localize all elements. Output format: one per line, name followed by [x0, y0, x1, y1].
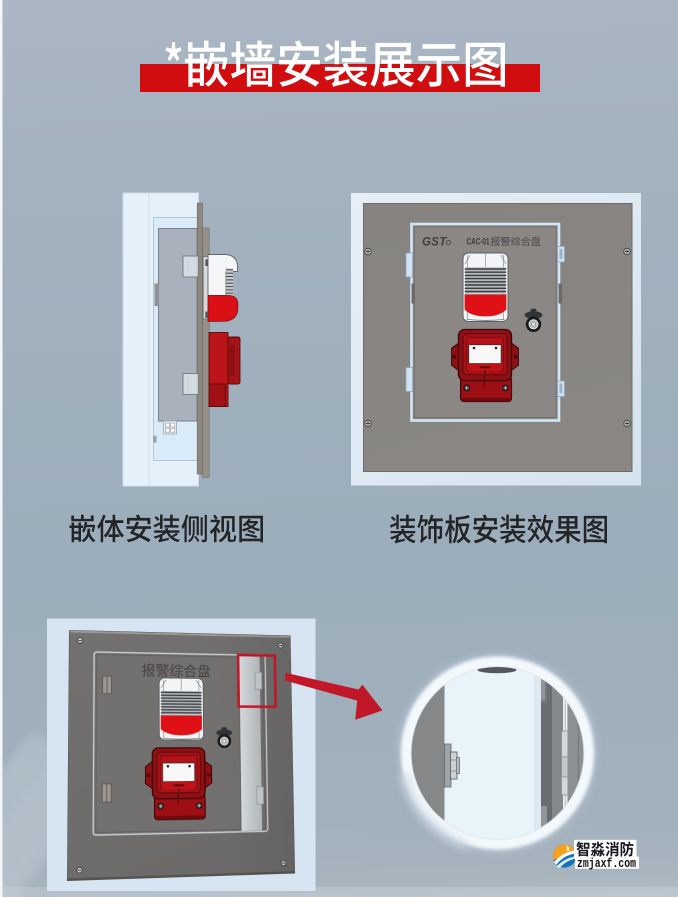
svg-text:GST: GST — [422, 237, 447, 249]
svg-text:CAC-01: CAC-01 — [467, 237, 490, 247]
svg-text:zmjaxf.com: zmjaxf.com — [577, 856, 636, 871]
